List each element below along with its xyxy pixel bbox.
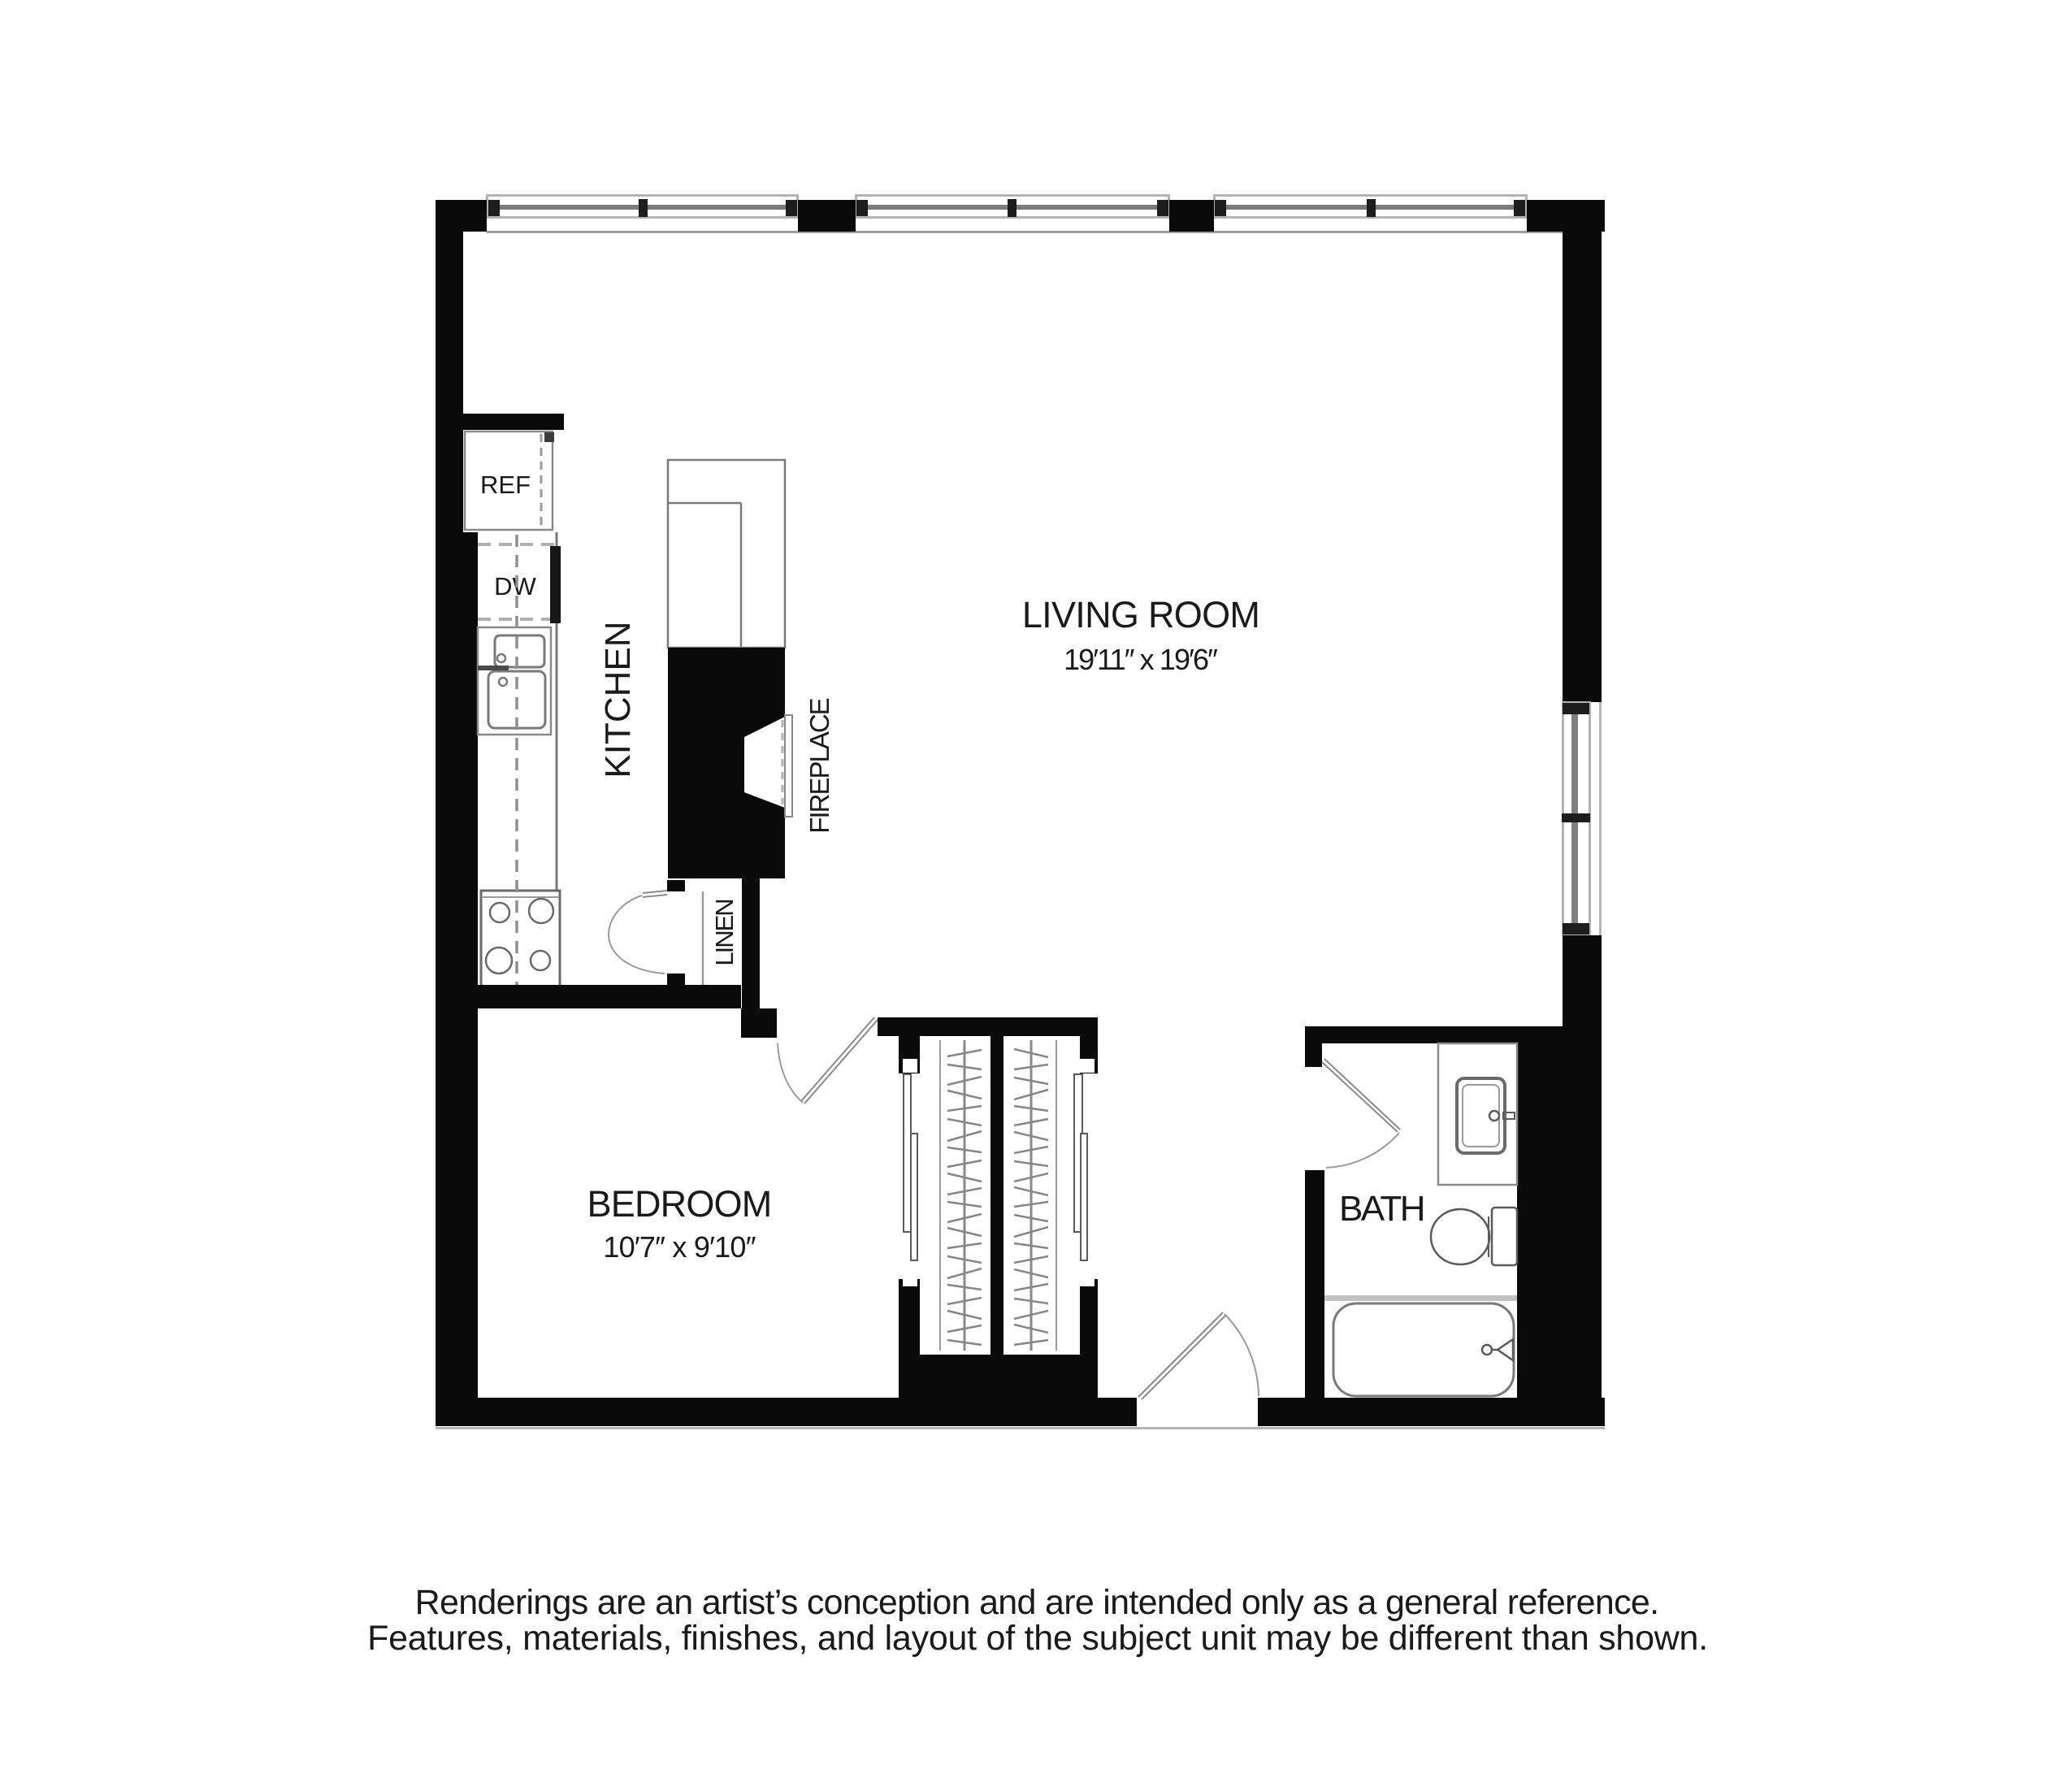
svg-text:REF: REF (480, 471, 531, 499)
svg-text:KITCHEN: KITCHEN (598, 621, 638, 778)
svg-text:BATH: BATH (1339, 1189, 1424, 1229)
svg-text:19′11″ x 19′6″: 19′11″ x 19′6″ (1064, 643, 1218, 676)
svg-text:10′7″ x 9′10″: 10′7″ x 9′10″ (603, 1230, 756, 1264)
svg-text:Renderings are an artist’s con: Renderings are an artist’s conception an… (415, 1583, 1659, 1622)
svg-text:BEDROOM: BEDROOM (587, 1183, 772, 1225)
svg-text:Features, materials, finishes,: Features, materials, finishes, and layou… (367, 1619, 1708, 1658)
svg-text:LINEN: LINEN (710, 900, 739, 965)
svg-text:FIREPLACE: FIREPLACE (804, 698, 834, 833)
svg-text:LIVING ROOM: LIVING ROOM (1022, 594, 1259, 635)
